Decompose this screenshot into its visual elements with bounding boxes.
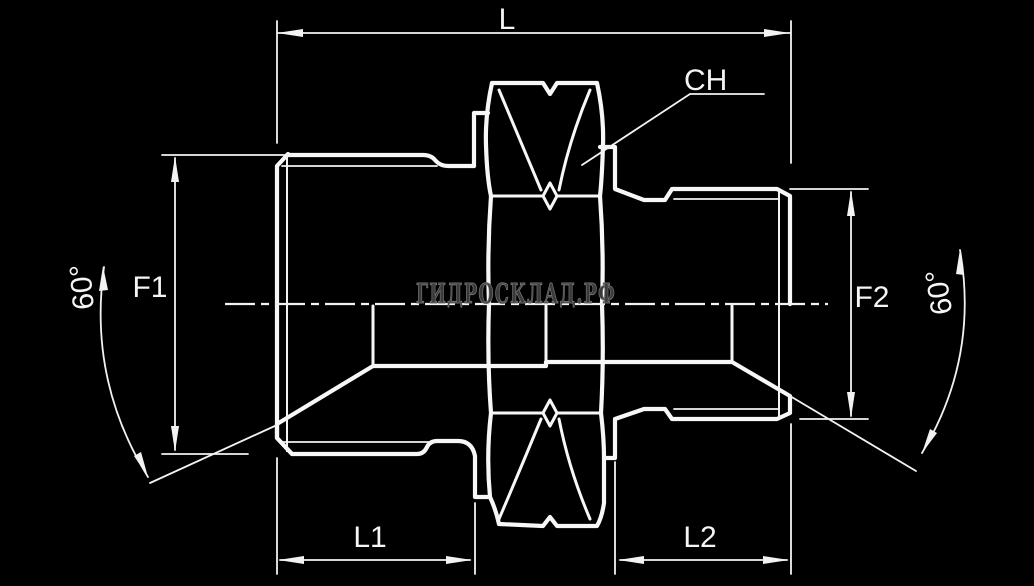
bore-internal-edges <box>373 306 732 366</box>
dim-L2-arrow-right <box>763 556 789 564</box>
right-collar-thread-top <box>600 147 790 304</box>
dim-L1-label: L1 <box>353 521 386 554</box>
bore-transition-lines <box>373 306 732 366</box>
dim-L2-arrow-left <box>618 556 644 564</box>
dim-CH-leader <box>582 94 764 165</box>
angle-right-arrow-top <box>956 249 964 275</box>
hatched-section-area <box>277 362 790 526</box>
hex-top-edge <box>492 83 597 94</box>
dimension-L1: L1 <box>277 458 475 574</box>
dim-F2-arrow-bottom <box>847 392 855 418</box>
dimension-CH: CH <box>582 64 764 165</box>
dim-L1-arrow-right <box>446 556 472 564</box>
dim-F2-label: F2 <box>854 281 889 314</box>
angle-left-arrow-top <box>99 266 108 291</box>
dim-L2-label: L2 <box>683 521 716 554</box>
dim-L-arrow-right <box>764 29 790 37</box>
dim-F1-arrow-bottom <box>171 426 179 452</box>
watermark: ГИДРОСКЛАД.РФ <box>416 279 616 310</box>
fitting-section-drawing: L CH F1 F2 L1 L2 <box>0 0 1034 586</box>
dim-F2-arrow-top <box>847 190 855 216</box>
dimension-angle-right: 60° <box>920 249 965 453</box>
hex-corner-diamond-bottom <box>543 400 557 426</box>
angle-left-arrow-bottom <box>134 452 148 477</box>
left-thread-top <box>287 155 474 166</box>
dim-CH-label: CH <box>684 64 727 97</box>
hex-corner-diamond-top <box>543 183 557 209</box>
angle-right-arrow-bottom <box>922 429 937 453</box>
part-section-hatch <box>277 362 790 526</box>
hex-right-silhouette <box>597 83 604 458</box>
dim-L-label: L <box>499 3 516 36</box>
dim-F1-label: F1 <box>132 271 167 304</box>
dim-F1-arrow-top <box>171 156 179 182</box>
dim-L1-arrow-left <box>278 556 304 564</box>
dimension-L2: L2 <box>615 424 791 574</box>
dim-L1-lines <box>277 458 475 574</box>
angle-left-label: 60° <box>64 263 101 311</box>
drawing-canvas: L CH F1 F2 L1 L2 <box>0 0 1034 586</box>
angle-right-label: 60° <box>920 267 960 317</box>
dim-L-arrow-left <box>277 29 303 37</box>
